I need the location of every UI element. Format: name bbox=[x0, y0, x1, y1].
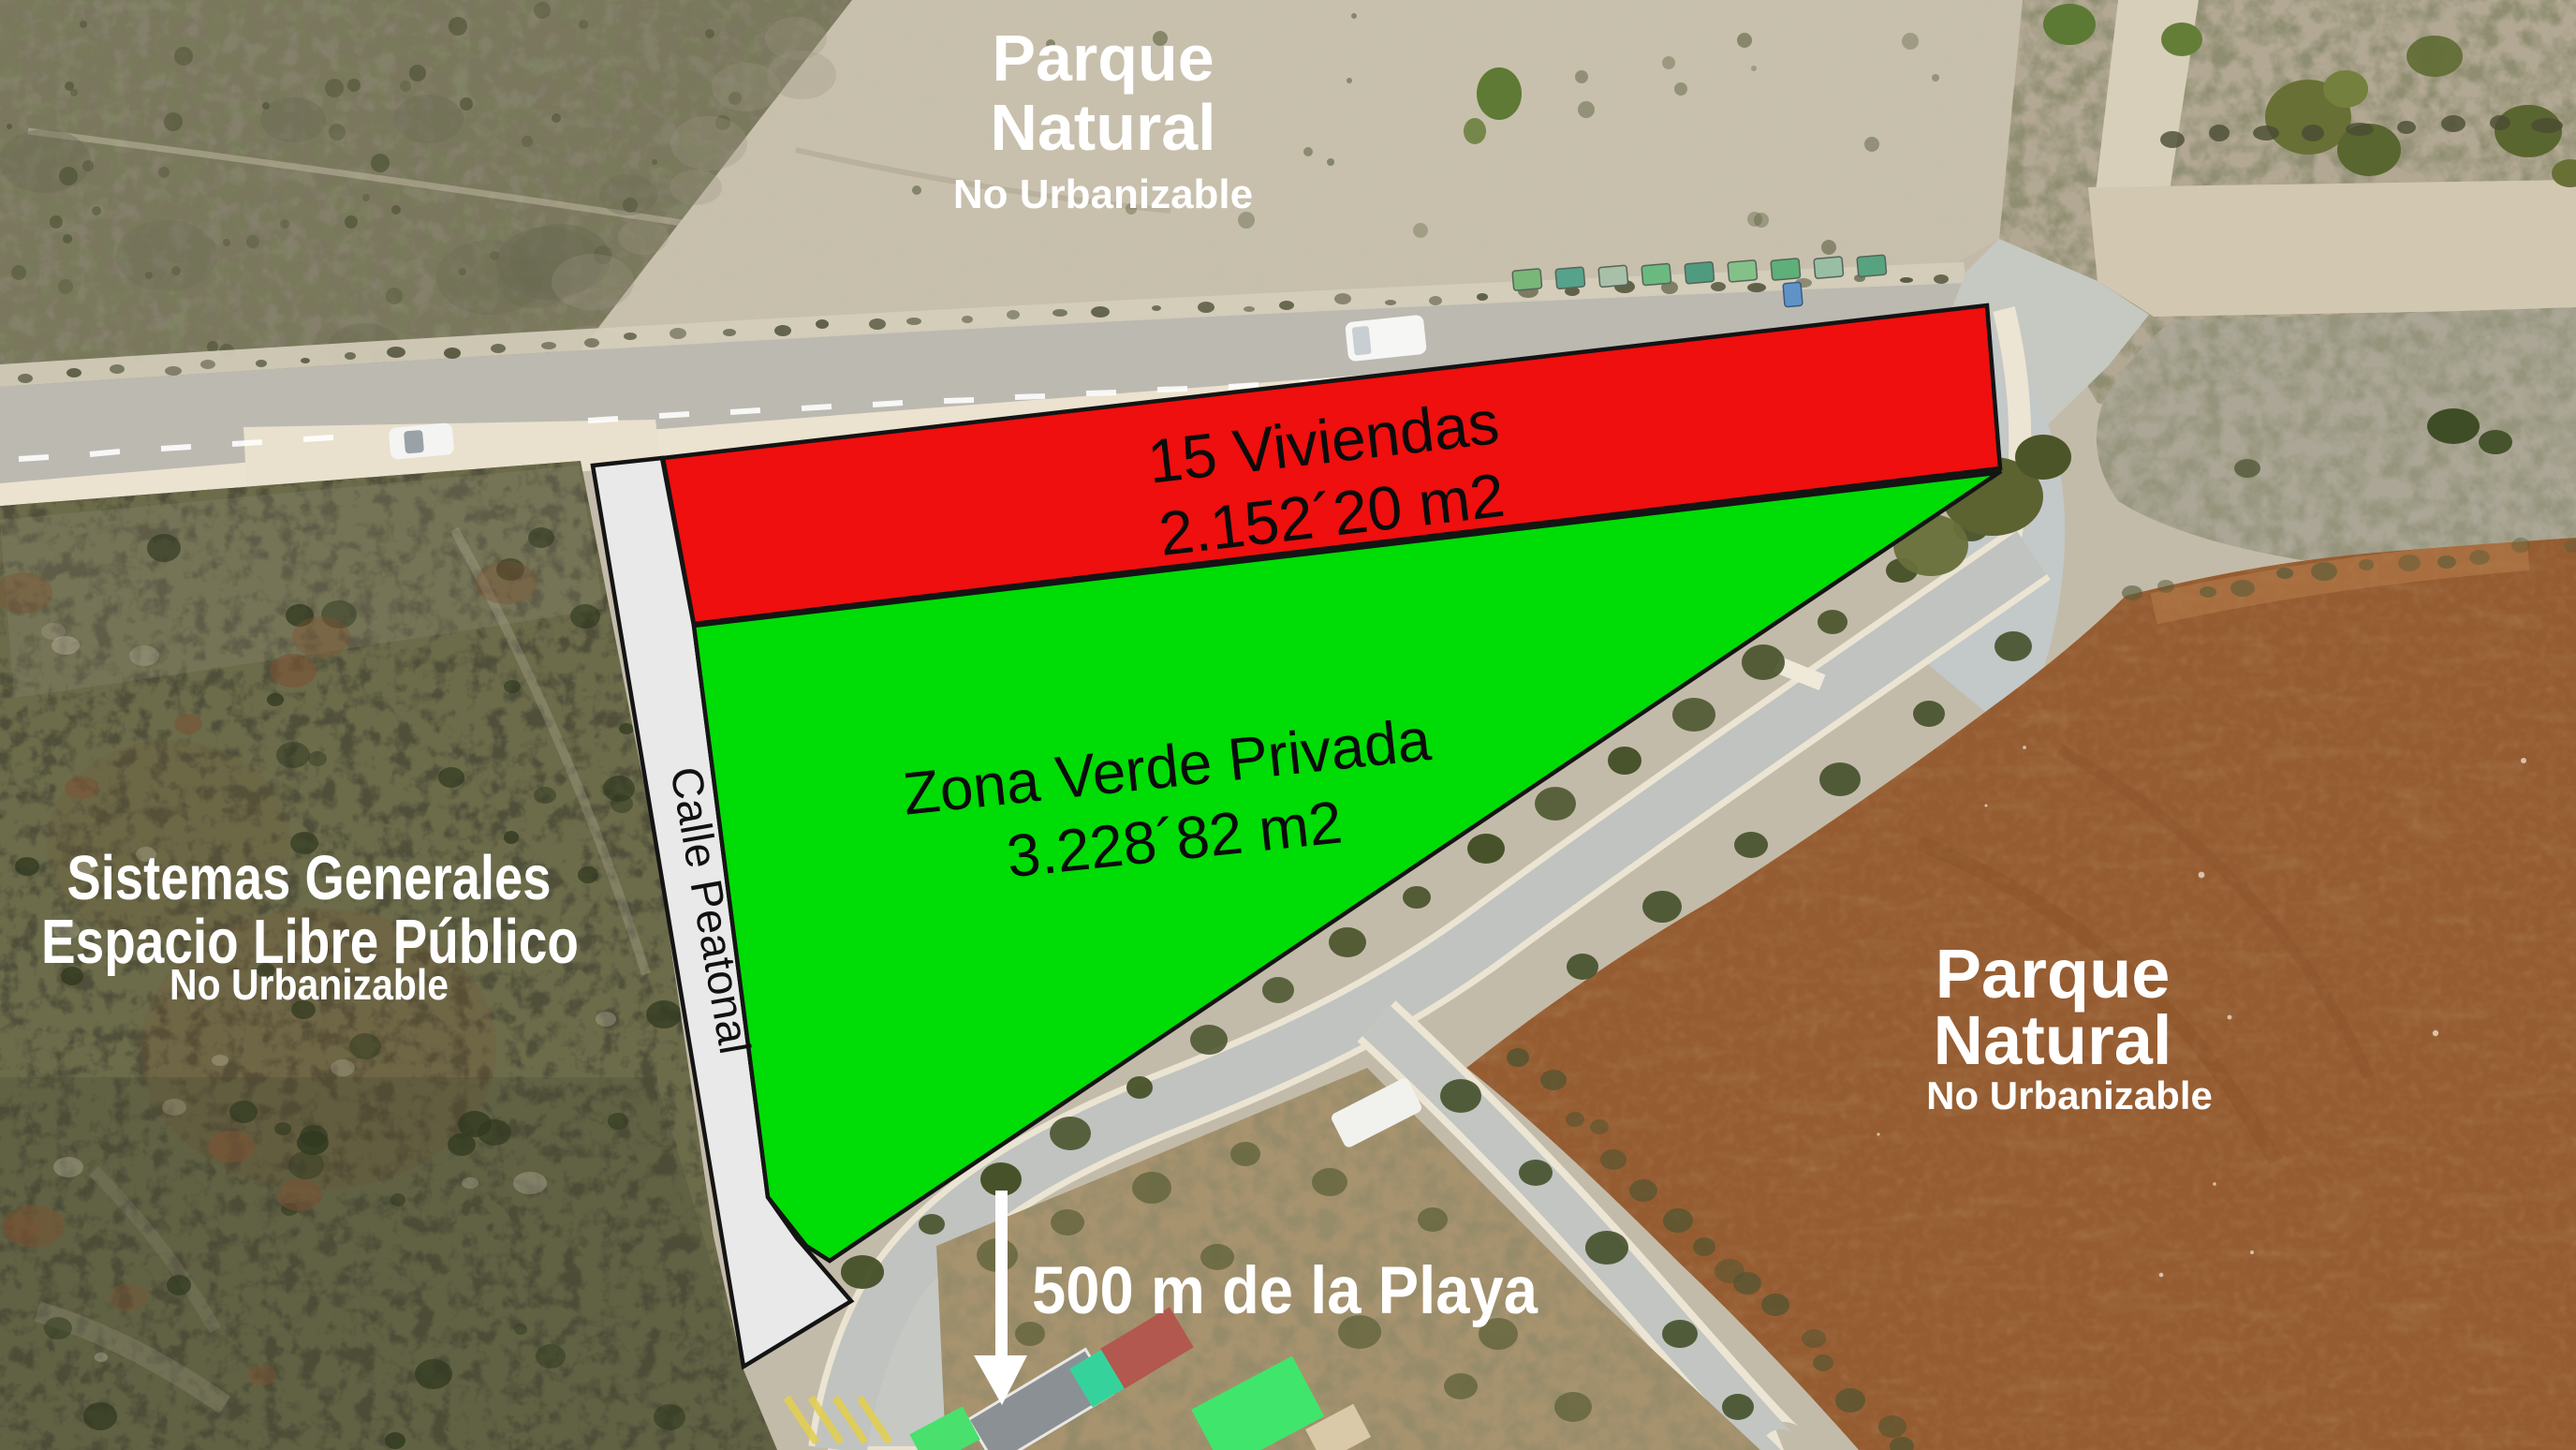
svg-text:Natural: Natural bbox=[1934, 1001, 2172, 1079]
svg-text:No Urbanizable: No Urbanizable bbox=[1926, 1073, 2213, 1117]
svg-text:500 m de la Playa: 500 m de la Playa bbox=[1032, 1254, 1538, 1328]
svg-text:Sistemas Generales: Sistemas Generales bbox=[67, 843, 552, 913]
svg-text:No Urbanizable: No Urbanizable bbox=[953, 171, 1253, 217]
svg-text:Parque: Parque bbox=[992, 22, 1214, 95]
svg-text:No Urbanizable: No Urbanizable bbox=[169, 960, 449, 1009]
svg-text:Natural: Natural bbox=[990, 91, 1215, 164]
